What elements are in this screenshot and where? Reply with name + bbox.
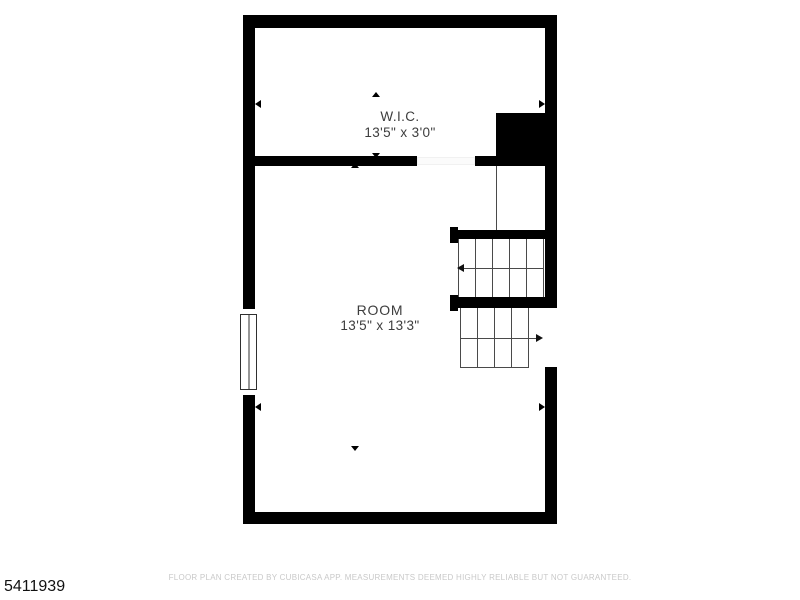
wall-right-upper [545, 15, 557, 308]
wic-dimensions: 13'5" x 3'0" [300, 125, 500, 141]
window-pane-line [248, 315, 249, 389]
measure-arrow-right-wic-icon [539, 100, 545, 108]
measure-arrow-up-room-icon [351, 163, 359, 168]
stair-direction-arrow-left-icon [457, 264, 464, 272]
measure-arrow-left-room-icon [255, 403, 261, 411]
wall-right-lower [545, 367, 557, 524]
stairs-stub-top [450, 227, 458, 243]
measure-arrow-left-wic-icon [255, 100, 261, 108]
wall-divider-left [243, 156, 417, 166]
measure-arrow-right-room-icon [539, 403, 545, 411]
wall-divider-right [475, 156, 496, 166]
wic-label: W.I.C. [300, 109, 500, 125]
listing-id: 5411939 [4, 578, 65, 596]
solid-wall-block [496, 113, 545, 166]
measure-arrow-up-wic-icon [372, 92, 380, 97]
measure-arrow-down-room-icon [351, 446, 359, 451]
room-dimensions: 13'5" x 13'3" [280, 318, 480, 334]
stair-landing-line [496, 166, 497, 230]
wall-top [243, 15, 557, 28]
stair-direction-line-lower [460, 338, 536, 339]
disclaimer-text: FLOOR PLAN CREATED BY CUBICASA APP. MEAS… [0, 573, 800, 582]
stair-direction-arrow-right-icon [536, 334, 543, 342]
floor-plan: W.I.C. 13'5" x 3'0" ROOM 13'5" x 13'3" [0, 0, 800, 600]
window [240, 314, 257, 390]
wall-left-lower [243, 395, 255, 524]
door-opening [417, 157, 475, 165]
stairs-wall-top [450, 230, 557, 239]
wall-bottom [243, 512, 557, 524]
measure-arrow-down-wic-icon [372, 153, 380, 158]
room-label: ROOM [280, 302, 480, 318]
stair-direction-line-upper [461, 268, 544, 269]
